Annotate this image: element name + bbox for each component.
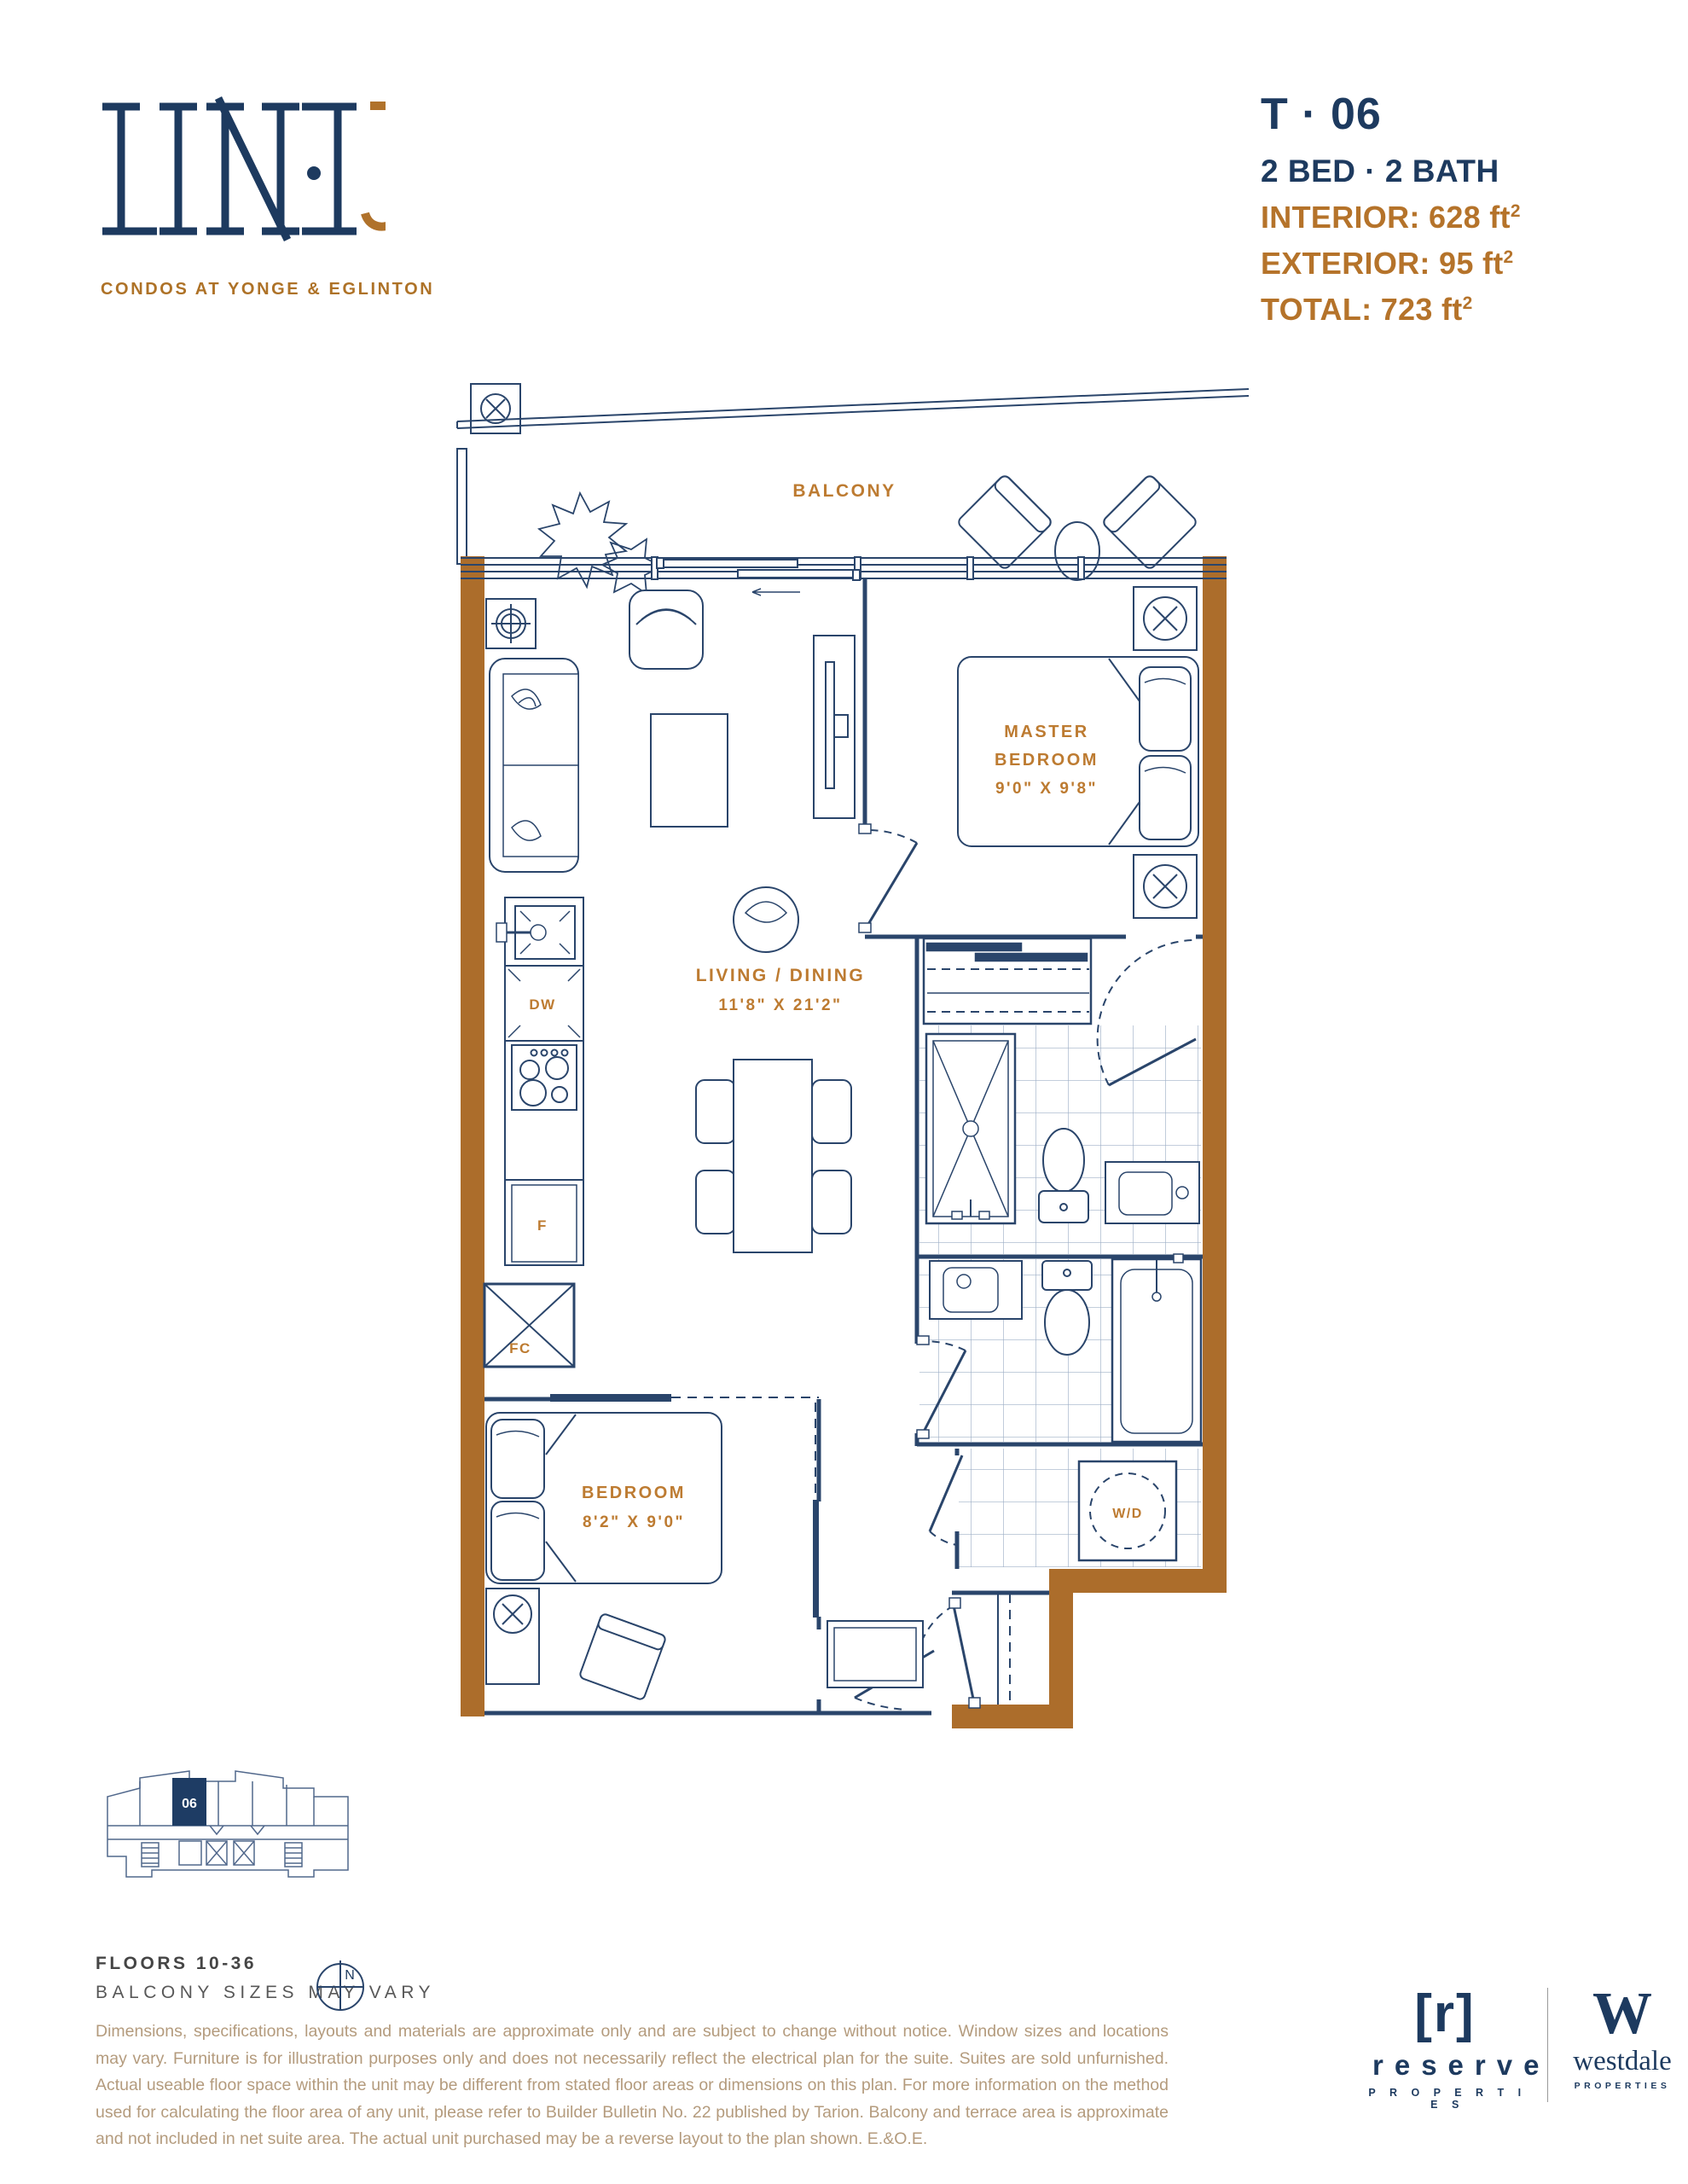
bedroom-dims: 8'2" X 9'0" xyxy=(583,1513,685,1531)
bedroom-label: BEDROOM xyxy=(582,1484,686,1502)
wd-label: W/D xyxy=(1112,1507,1143,1521)
reserve-sub: P R O P E R T I E S xyxy=(1366,2087,1528,2111)
line5-logo-mark xyxy=(96,75,386,271)
westdale-properties-logo: W westdale PROPERTIES xyxy=(1563,1984,1682,2091)
floors-range: FLOORS 10-36 xyxy=(96,1954,435,1974)
line5-logo xyxy=(96,75,386,271)
tv-unit xyxy=(814,636,855,818)
second-bedroom xyxy=(486,1413,923,1700)
reserve-mark: [r] xyxy=(1361,1988,1528,2041)
westdale-sub: PROPERTIES xyxy=(1563,2081,1682,2091)
dining-set xyxy=(696,1060,851,1252)
sliding-door-bedroom xyxy=(550,1394,671,1402)
north-label: N xyxy=(345,1968,355,1983)
fc-label: FC xyxy=(509,1340,531,1356)
unit-stat-total: TOTAL: 723 ft2 xyxy=(1261,292,1521,328)
round-chair xyxy=(734,887,798,952)
unit-stat-interior: INTERIOR: 628 ft2 xyxy=(1261,200,1521,235)
floorplan-drawing: BALCONY xyxy=(452,367,1254,1757)
footer-divider xyxy=(1547,1988,1548,2102)
dresser xyxy=(827,1621,923,1687)
pillow xyxy=(1140,667,1191,751)
ceiling-light-icon xyxy=(486,599,536,648)
dining-table xyxy=(734,1060,812,1252)
shower xyxy=(926,1034,1015,1223)
unit-number: T · 06 xyxy=(1261,89,1521,140)
balcony-label: BALCONY xyxy=(792,481,896,501)
coffee-table xyxy=(651,714,728,827)
cooktop xyxy=(512,1045,577,1110)
unit-stat-exterior: EXTERIOR: 95 ft2 xyxy=(1261,246,1521,282)
pillow xyxy=(1140,756,1191,839)
balcony-chair-2 xyxy=(1101,473,1198,570)
vanity-sink xyxy=(1105,1162,1199,1223)
balcony-note: BALCONY SIZES MAY VARY xyxy=(96,1983,435,2003)
keyplan-unit-number: 06 xyxy=(182,1797,197,1811)
dw-label: DW xyxy=(529,996,555,1013)
balcony-chair-1 xyxy=(956,473,1053,570)
closet-slider-bedroom xyxy=(813,1500,819,1618)
sofa xyxy=(490,659,578,872)
master-label-2: BEDROOM xyxy=(995,751,1099,770)
westdale-name: westdale xyxy=(1563,2046,1682,2077)
bathtub xyxy=(1112,1254,1201,1442)
unit-info: T · 06 2 BED · 2 BATH INTERIOR: 628 ft2 … xyxy=(1261,89,1521,328)
armchair xyxy=(629,590,703,669)
master-label-1: MASTER xyxy=(1004,723,1088,741)
living-label: LIVING / DINING xyxy=(696,966,866,985)
north-arrow-icon: N xyxy=(312,1959,368,2019)
door-swing-arrow xyxy=(752,589,800,595)
reserve-properties-logo: [r] reserve P R O P E R T I E S xyxy=(1361,1988,1528,2111)
living-dims: 11'8" X 21'2" xyxy=(718,996,842,1014)
window-wall xyxy=(461,557,1227,595)
chair xyxy=(579,1613,667,1701)
westdale-mark: W xyxy=(1563,1984,1682,2044)
floors-note: FLOORS 10-36 BALCONY SIZES MAY VARY xyxy=(96,1954,435,2003)
keyplan-outline xyxy=(107,1771,348,1877)
kitchen xyxy=(496,897,583,1265)
floorplan-page: CONDOS AT YONGE & EGLINTON T · 06 2 BED … xyxy=(0,0,1688,2184)
logo-five xyxy=(365,106,386,227)
unit-config: 2 BED · 2 BATH xyxy=(1261,154,1521,189)
keyplan: 06 xyxy=(90,1744,363,1919)
toilet xyxy=(1042,1261,1092,1355)
logo-dot xyxy=(307,166,321,180)
reserve-name: reserve xyxy=(1372,2049,1528,2082)
master-dims: 9'0" X 9'8" xyxy=(995,780,1098,798)
vanity-sink xyxy=(930,1261,1022,1319)
disclaimer-text: Dimensions, specifications, layouts and … xyxy=(96,2018,1169,2153)
toilet xyxy=(1039,1129,1088,1223)
sliding-door xyxy=(657,558,860,580)
logo-tagline: CONDOS AT YONGE & EGLINTON xyxy=(101,280,434,299)
f-label: F xyxy=(537,1217,548,1234)
master-closet xyxy=(924,938,1091,1024)
